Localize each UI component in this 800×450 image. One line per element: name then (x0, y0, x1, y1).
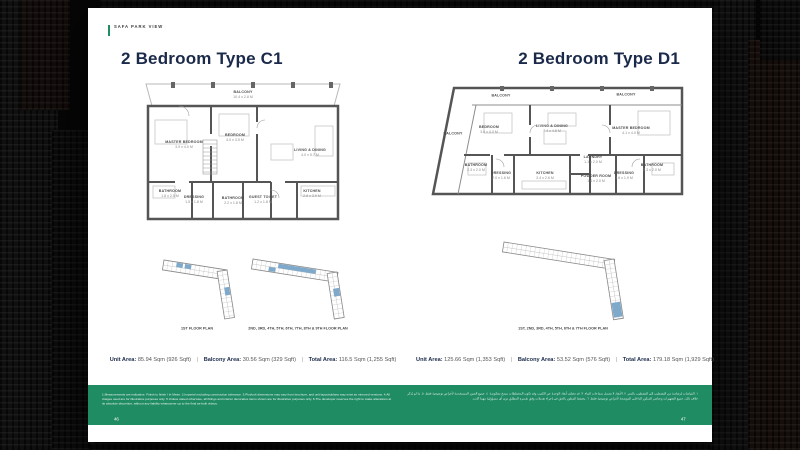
unit-area-stat: Unit Area: 125.66 Sqm (1,353 Sqft) (416, 357, 505, 363)
unit-area-stat: Unit Area: 85.94 Sqm (926 Sqft) (110, 357, 191, 363)
room-label-living-dining: LIVING & DINING 7.4 x 4.5 M (536, 124, 568, 134)
key-plan-d1-floors (500, 228, 628, 322)
room-label-powder-room: POWDER ROOM 1.4 x 2.0 M (581, 174, 611, 184)
page-number-left: 46 (114, 418, 119, 422)
room-label-balcony-top: BALCONY (492, 94, 511, 99)
building-silhouette (100, 0, 720, 8)
building-silhouette (748, 40, 800, 450)
stat-separator: | (302, 357, 303, 363)
balcony-area-stat: Balcony Area: 30.56 Sqm (329 Sqft) (204, 357, 296, 363)
room-label-bathroom-2: BATHROOM 2.3 x 2.0 M (641, 163, 663, 173)
key-plan-caption: 2ND, 3RD, 4TH, 5TH, 6TH, 7TH, 8TH & 9TH … (248, 327, 347, 331)
key-plan-caption: 1ST FLOOR PLAN (181, 327, 213, 331)
building-silhouette (20, 0, 70, 110)
room-label-bedroom: BEDROOM 4.0 x 3.5 M (225, 133, 245, 143)
building-silhouette (90, 443, 710, 450)
total-area-stat: Total Area: 116.5 Sqm (1,255 Sqft) (309, 357, 397, 363)
building-silhouette (760, 0, 800, 60)
floorplan-d1-drawing (430, 85, 685, 197)
room-label-guest-toilet: GUEST TOILET 1.2 x 1.8 M (248, 195, 276, 205)
stat-separator: | (616, 357, 617, 363)
balcony-area-stat: Balcony Area: 53.52 Sqm (576 Sqft) (518, 357, 610, 363)
disclaimer-english: 1.Measurements are indicative. Finish to… (102, 393, 393, 406)
room-label-balcony-right: BALCONY (617, 93, 636, 98)
brand-accent-bar (108, 25, 110, 36)
room-label-laundry: LAUNDRY 1.1 x 2.0 M (584, 155, 603, 165)
disclaimer-arabic: ١. القياسات إرشادية من التشطيب إلى التشط… (407, 392, 698, 401)
room-label-dressing: DRESSING 2.0 x 1.6 M (491, 171, 511, 181)
room-label-master-bedroom: MASTER BEDROOM 3.9 x 4.0 M (165, 140, 203, 150)
stat-separator: | (511, 357, 512, 363)
room-label-dressing: DRESSING 1.5 x 1.8 M (184, 195, 204, 205)
room-label-bathroom-2: BATHROOM 2.2 x 1.8 M (222, 196, 244, 206)
unit-title-c1: 2 Bedroom Type C1 (121, 49, 283, 69)
room-label-kitchen: KITCHEN 3.4 x 2.6 M (536, 171, 554, 181)
page-number-right: 47 (681, 418, 686, 422)
key-plan-c1-first-floor (160, 246, 240, 323)
room-label-balcony-left: BALCONY (443, 132, 462, 137)
area-stats-c1: Unit Area: 85.94 Sqm (926 Sqft) | Balcon… (121, 357, 385, 363)
disclaimer-footer: 1.Measurements are indicative. Finish to… (88, 385, 712, 425)
brand-label: SAFA PARK VIEW (114, 25, 163, 29)
unit-title-d1: 2 Bedroom Type D1 (518, 49, 680, 69)
floorplan-d1: BALCONY BALCONY BALCONY BEDROOM 3.6 x 4.… (430, 85, 685, 197)
room-label-balcony: BALCONY 10.4 x 2.8 M (233, 90, 253, 100)
brand-mark: SAFA PARK VIEW (108, 25, 196, 36)
stat-separator: | (197, 357, 198, 363)
room-label-bathroom: BATHROOM 1.8 x 2.5 M (159, 189, 181, 199)
key-plan-c1-upper-floors (250, 246, 345, 323)
total-area-stat: Total Area: 179.18 Sqm (1,929 Sqft) (623, 357, 714, 363)
room-label-living-dining: LIVING & DINING 4.0 x 5.7 M (294, 149, 326, 159)
room-label-kitchen: KITCHEN 2.8 x 3.9 M (303, 189, 321, 199)
room-label-bathroom: BATHROOM 2.3 x 2.0 M (465, 163, 487, 173)
brochure-spread: SAFA PARK VIEW 2 Bedroom Type C1 2 Bedro… (88, 8, 712, 442)
room-label-dressing-2: DRESSING 1.6 x 1.9 M (614, 171, 634, 181)
room-label-master-bedroom: MASTER BEDROOM 4.1 x 4.0 M (613, 126, 651, 136)
area-stats-d1: Unit Area: 125.66 Sqm (1,353 Sqft) | Bal… (447, 357, 682, 363)
floorplan-c1: BALCONY 10.4 x 2.8 M MASTER BEDROOM 3.9 … (145, 82, 341, 222)
key-plan-caption: 1ST, 2ND, 3RD, 4TH, 5TH, 6TH & 7TH FLOOR… (518, 327, 608, 331)
room-label-bedroom: BEDROOM 3.6 x 4.0 M (479, 125, 499, 135)
